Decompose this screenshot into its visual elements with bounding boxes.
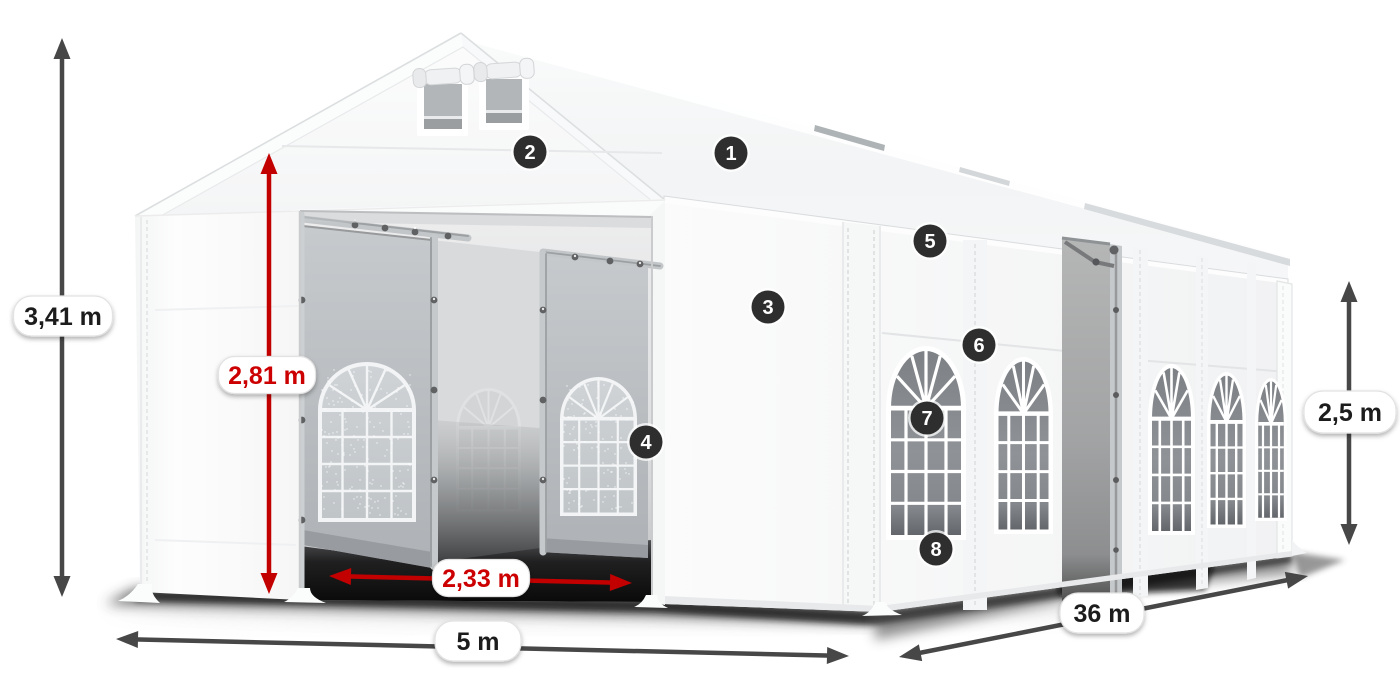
svg-text:1: 1 [725,143,736,165]
svg-text:2,33 m: 2,33 m [442,565,520,593]
svg-text:4: 4 [640,432,652,454]
svg-text:3,41 m: 3,41 m [24,303,102,331]
svg-text:3: 3 [762,297,773,319]
svg-text:5 m: 5 m [456,628,499,656]
svg-text:2,81 m: 2,81 m [228,362,306,390]
svg-text:5: 5 [924,231,935,253]
svg-text:2: 2 [524,142,535,164]
svg-text:2,5 m: 2,5 m [1318,399,1382,427]
svg-text:6: 6 [973,335,984,357]
svg-text:36 m: 36 m [1074,600,1131,628]
svg-text:7: 7 [921,408,932,430]
svg-text:8: 8 [930,539,941,561]
